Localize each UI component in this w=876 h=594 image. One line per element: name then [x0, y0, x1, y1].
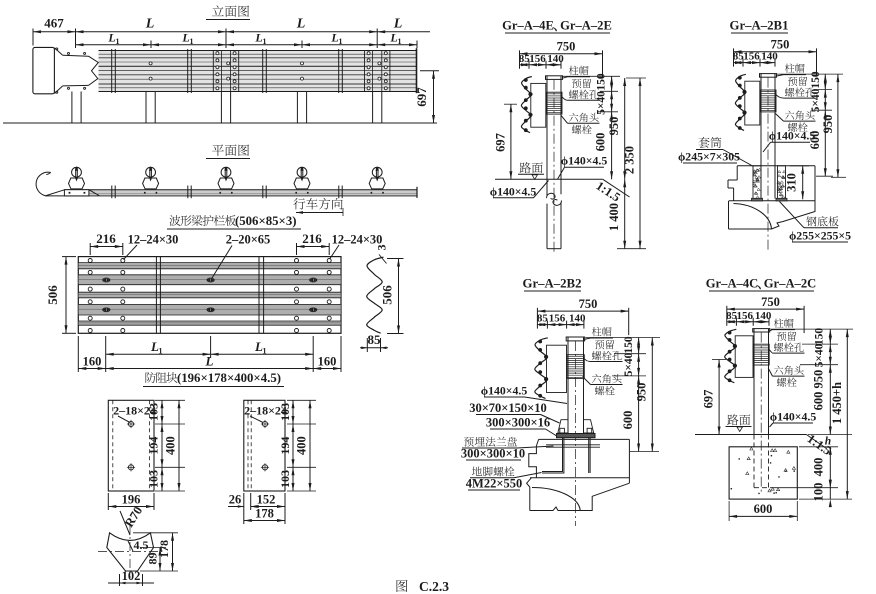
svg-text:178: 178	[255, 507, 274, 521]
svg-text:1: 1	[159, 347, 163, 356]
svg-text:5×40: 5×40	[810, 88, 822, 112]
svg-text:150: 150	[814, 328, 826, 346]
svg-text:12–24×30: 12–24×30	[332, 233, 383, 247]
svg-text:4.5: 4.5	[134, 538, 149, 552]
svg-text:150: 150	[810, 71, 822, 89]
svg-text:1: 1	[398, 37, 402, 46]
svg-text:ϕ140×4.5: ϕ140×4.5	[490, 185, 537, 199]
svg-text:400: 400	[812, 458, 826, 477]
svg-text:1 450+h: 1 450+h	[830, 382, 844, 424]
svg-text:300×300×10: 300×300×10	[461, 447, 525, 461]
svg-text:Gr–A–2C: Gr–A–2C	[764, 277, 816, 291]
svg-text:Gr–A–2E: Gr–A–2E	[560, 19, 612, 33]
svg-text:750: 750	[761, 295, 780, 309]
svg-text:103: 103	[278, 470, 292, 488]
svg-text:216: 216	[96, 231, 116, 246]
svg-text:697: 697	[702, 390, 716, 409]
svg-text:156: 156	[549, 313, 566, 325]
svg-text:L: L	[393, 17, 403, 32]
svg-text:506: 506	[45, 285, 60, 305]
svg-text:26: 26	[229, 493, 242, 507]
svg-text:196: 196	[122, 493, 141, 507]
svg-text:750: 750	[771, 38, 790, 52]
svg-text:L: L	[389, 31, 397, 45]
svg-text:600 950: 600 950	[812, 370, 826, 411]
svg-text:1: 1	[263, 37, 267, 46]
svg-text:L: L	[181, 31, 189, 45]
svg-text:150: 150	[596, 73, 608, 91]
svg-text:600: 600	[594, 133, 608, 152]
svg-text:156: 156	[529, 53, 546, 65]
svg-text:12–24×30: 12–24×30	[128, 233, 179, 247]
svg-text:156: 156	[743, 51, 760, 63]
svg-text:h: h	[825, 436, 831, 448]
svg-text:400: 400	[164, 436, 178, 455]
svg-text:2–20×65: 2–20×65	[226, 233, 271, 247]
svg-text:150: 150	[623, 336, 635, 354]
svg-text:950: 950	[607, 117, 621, 136]
svg-text:5×40: 5×40	[596, 91, 608, 115]
svg-text:103: 103	[147, 403, 161, 421]
svg-text:4M22×550: 4M22×550	[466, 477, 522, 491]
svg-text:(196×178×400×4.5): (196×178×400×4.5)	[177, 371, 281, 385]
svg-text:ϕ140×4.5: ϕ140×4.5	[770, 409, 817, 423]
svg-text:85: 85	[368, 332, 382, 347]
svg-text:194: 194	[278, 437, 292, 455]
svg-text:(506×85×3): (506×85×3)	[235, 214, 297, 228]
svg-text:950: 950	[821, 115, 835, 134]
svg-text:103: 103	[278, 403, 292, 421]
svg-text:Gr–A–4E: Gr–A–4E	[502, 19, 554, 33]
svg-text:ϕ140×4.5: ϕ140×4.5	[561, 154, 608, 168]
svg-text:178: 178	[157, 540, 171, 558]
svg-text:140: 140	[569, 313, 586, 325]
svg-text:102: 102	[122, 569, 141, 583]
svg-text:1: 1	[263, 347, 267, 356]
svg-text:600: 600	[621, 411, 635, 430]
svg-text:3: 3	[375, 245, 389, 251]
svg-text:L: L	[330, 31, 338, 45]
svg-text:152: 152	[257, 493, 276, 507]
svg-text:194: 194	[147, 437, 161, 455]
svg-text:L: L	[205, 354, 214, 369]
svg-text:Gr–A–2B2: Gr–A–2B2	[522, 277, 581, 291]
svg-text:ϕ140×4.5: ϕ140×4.5	[481, 384, 528, 398]
svg-text:ϕ245×7×305: ϕ245×7×305	[678, 150, 740, 164]
svg-text:216: 216	[302, 231, 322, 246]
svg-text:5×40: 5×40	[814, 343, 826, 367]
svg-text:697: 697	[414, 87, 429, 107]
svg-text:1: 1	[339, 37, 343, 46]
svg-text:100: 100	[812, 483, 826, 502]
svg-text:Gr–A–4C: Gr–A–4C	[706, 277, 758, 291]
svg-text:160: 160	[318, 355, 337, 369]
svg-text:L: L	[254, 31, 262, 45]
svg-text:600: 600	[754, 502, 773, 516]
svg-text:400: 400	[295, 436, 309, 455]
svg-text:L: L	[145, 17, 155, 32]
svg-text:5×40: 5×40	[623, 352, 635, 376]
svg-text:30×70×150×10: 30×70×150×10	[469, 401, 547, 415]
svg-text:950: 950	[635, 383, 649, 402]
svg-text:103: 103	[147, 470, 161, 488]
svg-text:1: 1	[116, 37, 120, 46]
svg-text:506: 506	[380, 285, 395, 305]
svg-text:467: 467	[44, 16, 64, 31]
svg-text:L: L	[296, 17, 306, 32]
svg-text:L: L	[107, 31, 115, 45]
svg-text:1: 1	[190, 37, 194, 46]
svg-text:140: 140	[547, 53, 564, 65]
svg-text:160: 160	[83, 355, 102, 369]
svg-text:2 350: 2 350	[623, 146, 637, 174]
svg-text:140: 140	[755, 310, 772, 322]
svg-text:ϕ255×255×5: ϕ255×255×5	[789, 229, 851, 243]
svg-text:85: 85	[537, 313, 549, 325]
svg-text:300×300×16: 300×300×16	[486, 416, 550, 430]
svg-text:1 400: 1 400	[607, 203, 621, 231]
svg-text:697: 697	[494, 133, 508, 152]
svg-text:C.2.3: C.2.3	[419, 579, 449, 594]
svg-text:Gr–A–2B1: Gr–A–2B1	[729, 19, 788, 33]
svg-text:140: 140	[761, 51, 778, 63]
svg-text:750: 750	[557, 40, 576, 54]
svg-text:156: 156	[737, 310, 754, 322]
svg-text:310: 310	[785, 173, 799, 192]
svg-text:750: 750	[579, 297, 598, 311]
